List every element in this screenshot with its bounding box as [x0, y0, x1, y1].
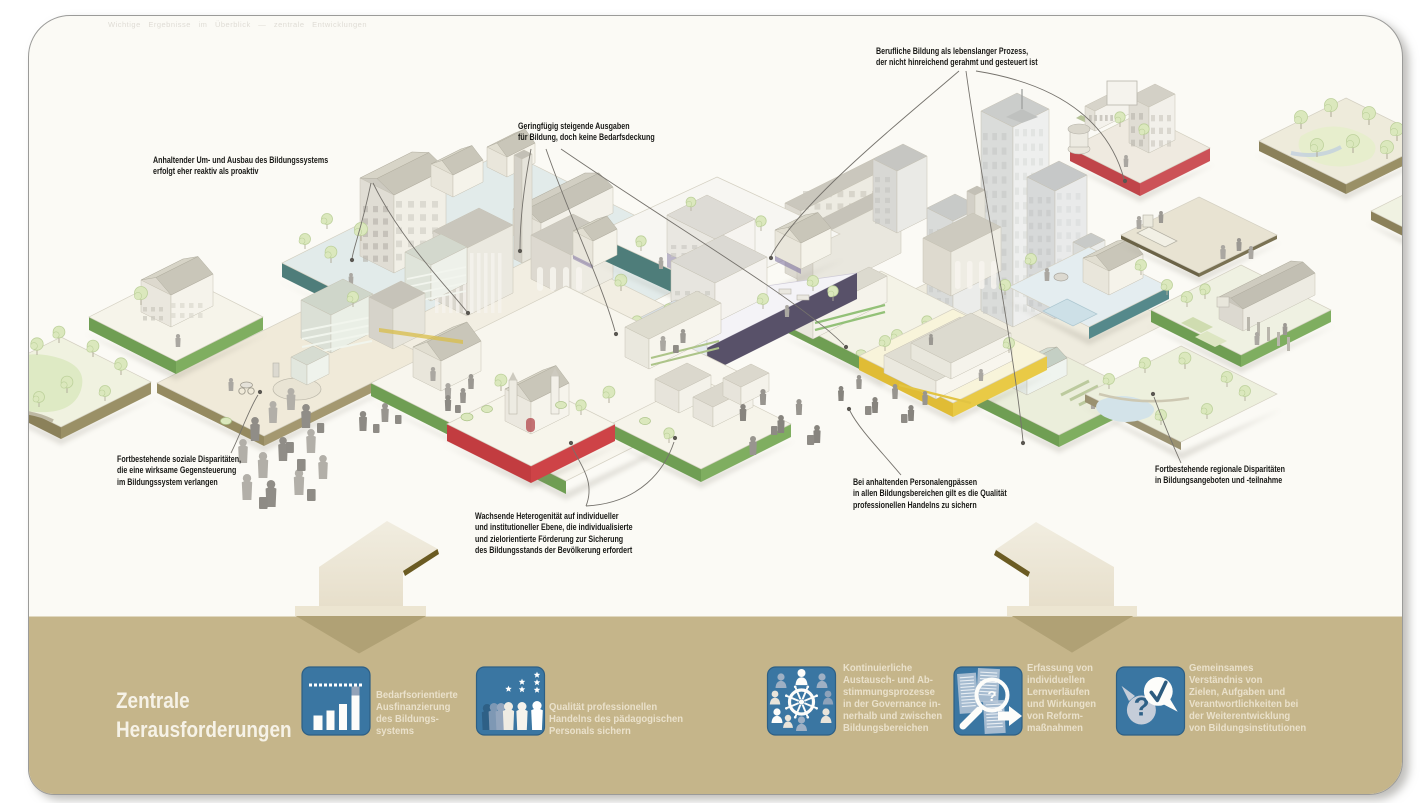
svg-text:?: ?	[987, 688, 996, 705]
